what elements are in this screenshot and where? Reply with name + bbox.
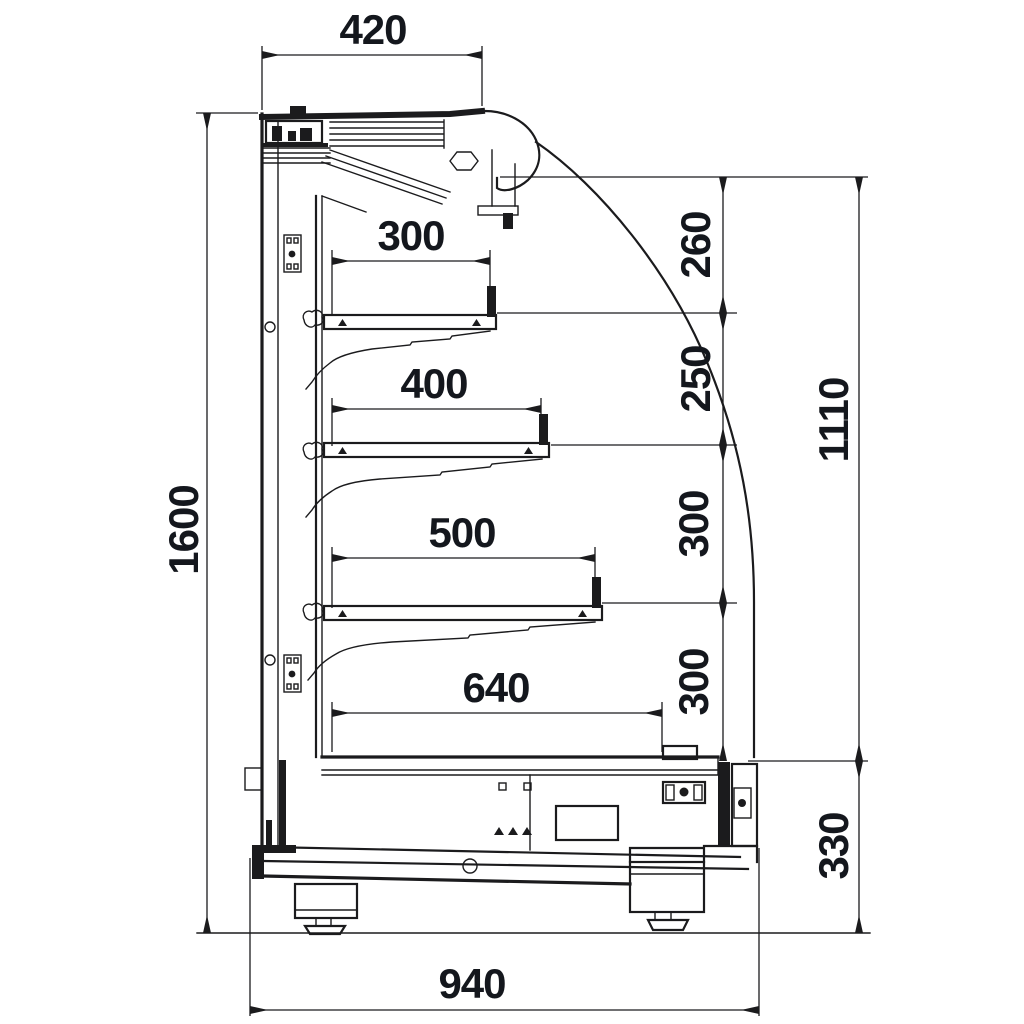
front-glass-curve <box>536 142 754 757</box>
front-foot <box>630 846 757 930</box>
back-panel <box>245 114 322 848</box>
dim-top-width-label: 420 <box>339 6 406 53</box>
dim-shelf3-to-base-label: 300 <box>670 648 717 715</box>
dim-canopy-to-shelf1-label: 260 <box>672 211 719 278</box>
canopy <box>262 111 539 212</box>
dim-opening-height: 1110 <box>810 177 859 761</box>
dim-overall-depth-label: 940 <box>438 960 505 1007</box>
dim-shelf3-width: 500 <box>332 509 595 608</box>
dim-overall-depth: 940 <box>250 848 759 1016</box>
shelf-2-bracket <box>306 459 542 517</box>
wall-bracket-lower <box>284 655 301 692</box>
dim-overall-height-label: 1600 <box>160 485 207 574</box>
base-unit <box>252 746 757 884</box>
shelf-clip-3 <box>303 603 323 620</box>
shelf-2 <box>306 414 549 517</box>
compartment-vent <box>556 806 618 840</box>
control-box <box>663 782 705 803</box>
shelf-standard-details <box>265 235 323 692</box>
dim-shelf1-width-label: 300 <box>377 212 444 259</box>
dim-opening-height-label: 1110 <box>810 378 857 463</box>
shelf-3-end-stop <box>592 577 601 608</box>
dim-shelf2-to-shelf3-label: 300 <box>670 490 717 557</box>
display-case-section-drawing: 420 1600 300 400 500 <box>0 0 1024 1024</box>
dim-shelf2-width: 400 <box>332 360 541 446</box>
shelf-clip-1 <box>303 310 323 327</box>
shelf-1-end-stop <box>487 286 496 317</box>
dim-base-shelf-width-label: 640 <box>462 664 529 711</box>
dim-shelf2-width-label: 400 <box>400 360 467 407</box>
rear-foot <box>295 884 357 934</box>
plinth-hole <box>463 859 477 873</box>
dim-shelf1-width: 300 <box>332 212 490 316</box>
dim-base-height-label: 330 <box>810 812 857 879</box>
shelf-clip-2 <box>303 442 323 459</box>
wall-hole-upper <box>265 322 275 332</box>
shelf-3-bracket <box>308 622 595 680</box>
case-drawing <box>197 106 870 934</box>
dim-shelf-gaps: 260 250 300 300 <box>497 177 868 761</box>
dim-shelf3-width-label: 500 <box>428 509 495 556</box>
dim-base-height: 330 <box>810 761 859 933</box>
dim-top-width: 420 <box>262 6 482 110</box>
dim-shelf1-to-shelf2-label: 250 <box>672 345 719 412</box>
technical-drawing-page: 420 1600 300 400 500 <box>0 0 1024 1024</box>
dim-base-shelf-width: 640 <box>332 664 662 752</box>
air-deflector <box>450 152 478 170</box>
wall-bracket-upper <box>284 235 301 272</box>
shelf-3 <box>308 577 602 680</box>
fan-unit <box>263 106 326 145</box>
dim-overall-height: 1600 <box>160 113 258 933</box>
wall-hole-lower <box>265 655 275 665</box>
